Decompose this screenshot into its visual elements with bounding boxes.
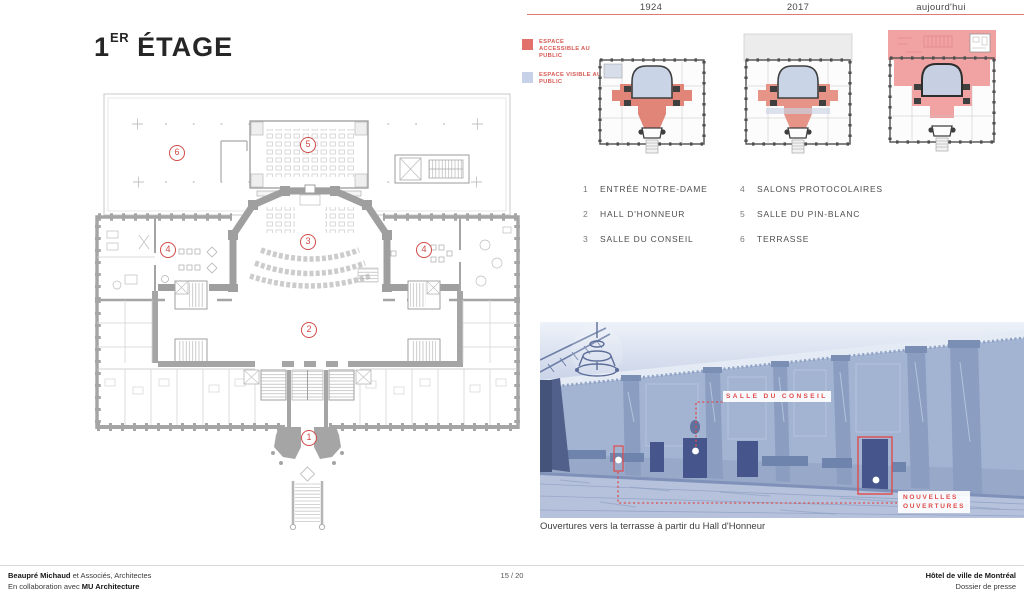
plan-badge-salon-droit: 4: [416, 242, 432, 258]
room-number: 6: [740, 234, 757, 244]
timeline-rule: [527, 14, 1024, 15]
room-number: 2: [583, 209, 600, 219]
photo-caption: Ouvertures vers la terrasse à partir du …: [540, 521, 765, 532]
year-1924: 1924: [640, 2, 662, 13]
footer-project: Hôtel de ville de Montréal Dossier de pr…: [926, 570, 1016, 592]
room-label: SALLE DU CONSEIL: [600, 234, 694, 244]
legend-swatch-visible: [522, 72, 533, 83]
legend-item-visible: ESPACE VISIBLE AU PUBLIC: [522, 72, 602, 86]
title-ordinal: ER: [110, 30, 129, 45]
room-label: SALONS PROTOCOLAIRES: [757, 184, 883, 194]
footer-project-sub: Dossier de presse: [926, 581, 1016, 592]
mini-plan-1924-drawing: [596, 24, 708, 164]
plan-badge-terrasse: 6: [169, 145, 185, 161]
annotation-salle-du-conseil: SALLE DU CONSEIL: [723, 391, 831, 402]
legend: ESPACE ACCESSIBLE AU PUBLIC ESPACE VISIB…: [522, 39, 602, 98]
annotation-nouvelles-line2: OUVERTURES: [903, 502, 965, 511]
mini-plan-aujourdhui: [886, 22, 998, 162]
mini-plan-1924: [596, 24, 708, 164]
plan-badge-hall: 2: [301, 322, 317, 338]
footer-collab-bold: MU Architecture: [82, 582, 140, 591]
room-list-column-1: 1ENTRÉE NOTRE-DAME 2HALL D'HONNEUR 3SALL…: [583, 184, 708, 259]
footer-collab-prefix: En collaboration avec: [8, 582, 82, 591]
title-word: ÉTAGE: [137, 32, 233, 62]
room-label: HALL D'HONNEUR: [600, 209, 685, 219]
hall-honneur-photo: SALLE DU CONSEIL NOUVELLES OUVERTURES: [540, 322, 1024, 518]
annotation-nouvelles-line1: NOUVELLES: [903, 493, 965, 502]
room-number: 5: [740, 209, 757, 219]
mini-plan-2017-drawing: [742, 24, 854, 164]
footer-collab-line: En collaboration avec MU Architecture: [8, 581, 151, 592]
room-list-item: 2HALL D'HONNEUR: [583, 209, 708, 219]
page-number: 15 / 20: [0, 570, 1024, 581]
mini-plan-2017: [742, 24, 854, 164]
plan-badge-salon-gauche: 4: [160, 242, 176, 258]
legend-label-accessible: ESPACE ACCESSIBLE AU PUBLIC: [539, 39, 602, 60]
main-floor-plan: 1 2 3 4 4 5 6: [95, 85, 520, 535]
year-2017: 2017: [787, 2, 809, 13]
room-number: 1: [583, 184, 600, 194]
room-list-item: 3SALLE DU CONSEIL: [583, 234, 708, 244]
page-title: 1ERÉTAGE: [94, 30, 233, 63]
room-list-item: 1ENTRÉE NOTRE-DAME: [583, 184, 708, 194]
room-label: SALLE DU PIN-BLANC: [757, 209, 860, 219]
plan-badge-salle-conseil: 3: [300, 234, 316, 250]
room-list-column-2: 4SALONS PROTOCOLAIRES 5SALLE DU PIN-BLAN…: [740, 184, 883, 259]
year-aujourdhui: aujourd'hui: [916, 2, 965, 13]
room-list-item: 4SALONS PROTOCOLAIRES: [740, 184, 883, 194]
legend-label-visible: ESPACE VISIBLE AU PUBLIC: [539, 72, 602, 86]
mini-plan-aujourdhui-drawing: [886, 22, 998, 162]
legend-swatch-accessible: [522, 39, 533, 50]
photo-image: [540, 322, 1024, 518]
room-number: 4: [740, 184, 757, 194]
plan-badge-pin-blanc: 5: [300, 137, 316, 153]
room-label: TERRASSE: [757, 234, 809, 244]
plan-badge-entree: 1: [301, 430, 317, 446]
room-list-item: 6TERRASSE: [740, 234, 883, 244]
annotation-nouvelles-ouvertures: NOUVELLES OUVERTURES: [898, 491, 970, 513]
footer-project-title: Hôtel de ville de Montréal: [926, 570, 1016, 581]
room-label: ENTRÉE NOTRE-DAME: [600, 184, 708, 194]
room-number: 3: [583, 234, 600, 244]
room-list-item: 5SALLE DU PIN-BLANC: [740, 209, 883, 219]
title-number: 1: [94, 32, 110, 62]
footer-divider: [0, 565, 1024, 566]
legend-item-accessible: ESPACE ACCESSIBLE AU PUBLIC: [522, 39, 602, 60]
press-kit-slide: 1ERÉTAGE: [0, 0, 1024, 596]
